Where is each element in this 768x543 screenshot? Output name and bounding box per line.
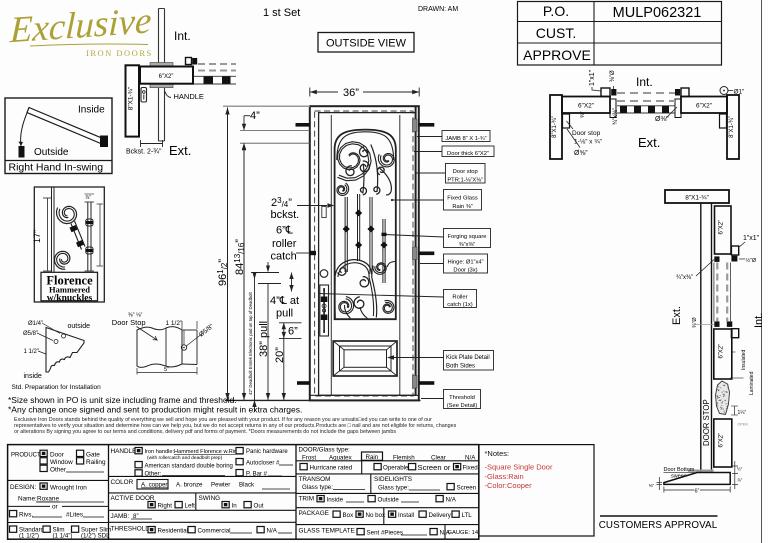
svg-text:Door stop: Door stop [572,130,601,137]
svg-text:bckst.: bckst. [271,209,300,221]
svg-text:Laminated: Laminated [749,371,755,395]
svg-text:Fixed: Fixed [463,465,479,472]
svg-text:Both Sides: Both Sides [446,364,475,370]
svg-text:6”X2”: 6”X2” [696,103,712,110]
svg-text:6”: 6” [695,489,700,495]
svg-text:A. bronze: A. bronze [176,482,203,489]
svg-text:Hinge: Ø1”x4”: Hinge: Ø1”x4” [447,259,483,265]
svg-text:CUST.: CUST. [536,25,576,41]
svg-text:1 1/2”: 1 1/2” [166,320,183,327]
svg-text:PACKAGE: PACKAGE [299,510,329,517]
svg-text:IRON DOORS: IRON DOORS [86,48,153,58]
svg-text:Panic hardware: Panic hardware [246,449,288,455]
svg-text:Aquatex: Aquatex [329,454,353,461]
svg-text:Glass type:: Glass type: [302,484,333,491]
svg-text:HANDLE: HANDLE [174,92,204,101]
svg-text:American standard double borin: American standard double boring [145,464,233,470]
svg-text:or alterations By signing you: or alterations By signing you agree to o… [14,429,396,435]
svg-text:TRANSOM: TRANSOM [299,476,331,483]
svg-text:Pewter: Pewter [211,482,230,489]
svg-text:6”X2”: 6”X2” [719,433,725,448]
svg-text:JAMB:: JAMB: [111,513,130,520]
svg-text:Name:: Name: [18,496,37,503]
svg-text:N/A: N/A [267,528,278,535]
svg-text:(1 1/2”): (1 1/2”) [19,533,39,540]
svg-text:Operable: Operable [383,465,409,472]
svg-text:GLASS TEMPLATE: GLASS TEMPLATE [299,528,355,535]
svg-text:1 st Set: 1 st Set [263,7,300,19]
svg-text:Screen or: Screen or [418,463,451,472]
svg-text:38” pull: 38” pull [258,321,270,357]
svg-text:-Color:Cooper: -Color:Cooper [485,481,533,490]
svg-text:-Square Single Door: -Square Single Door [485,463,553,472]
svg-text:Right: Right [158,503,173,510]
svg-text:Delivery: Delivery [429,512,452,519]
svg-text:No box: No box [366,512,387,519]
svg-text:Railing: Railing [86,459,106,466]
svg-text:N/A: N/A [465,454,476,461]
svg-text:Screen: Screen [457,485,477,492]
svg-text:-Glass:Rain: -Glass:Rain [485,472,524,481]
svg-text:GAUGE: 14: GAUGE: 14 [448,530,479,536]
svg-text:5”: 5” [164,367,169,373]
svg-text:Out: Out [254,503,264,510]
svg-text:inside: inside [24,373,42,380]
svg-text:¾”x⅜”: ¾”x⅜” [676,275,693,281]
svg-text:Outside: Outside [34,147,69,158]
svg-text:Door stop: Door stop [453,169,478,175]
svg-text:APPROVE: APPROVE [523,47,591,63]
svg-text:Gate: Gate [86,452,100,459]
svg-text:Hurricane rated: Hurricane rated [310,465,353,472]
svg-text:6”X2”: 6”X2” [719,220,725,235]
svg-text:roller: roller [272,238,297,250]
svg-text:DESIGN:: DESIGN: [10,484,37,491]
svg-text:*Notes:: *Notes: [485,449,510,458]
svg-text:PRODUCT:: PRODUCT: [11,453,42,459]
svg-text:Ext.: Ext. [638,135,660,150]
svg-text:¾”x⅜”: ¾”x⅜” [613,108,619,125]
svg-text:Roxane: Roxane [37,496,59,503]
svg-text:P.O.: P.O. [543,3,569,19]
svg-text:36”: 36” [343,87,359,99]
svg-text:Ø5/8”: Ø5/8” [198,323,215,339]
svg-text:1”x1”: 1”x1” [743,235,760,242]
svg-text:8”X1-¾”: 8”X1-¾” [552,116,558,138]
svg-text:Door Bottom: Door Bottom [664,467,695,473]
svg-text:20”: 20” [274,347,286,363]
svg-text:Threshold: Threshold [449,395,475,401]
svg-text:DRAWN: AM: DRAWN: AM [418,6,458,13]
svg-text:Ø⅝”: Ø⅝” [574,150,588,157]
svg-text:(with rollercatch and deadbolt: (with rollercatch and deadbolt prep) [147,455,223,461]
svg-text:1”x1”: 1”x1” [589,69,596,86]
svg-text:Other:: Other: [145,472,162,478]
svg-text:8”X1-¾”: 8”X1-¾” [128,87,135,110]
svg-text:⅞”: ⅞” [85,195,91,201]
svg-text:Residential: Residential [158,528,189,535]
svg-text:#Lites: #Lites [66,512,83,519]
svg-text:Roller: Roller [452,294,467,300]
svg-text:Outside: Outside [378,497,400,504]
svg-text:6”X2”: 6”X2” [159,74,174,80]
svg-text:Door: Door [50,452,65,459]
svg-text:JAMB 8” X 1-¾”: JAMB 8” X 1-¾” [445,136,486,142]
svg-text:½”: ½” [737,466,743,472]
svg-text:*Size shown in PO is unit size: *Size shown in PO is unit size including… [8,395,237,405]
svg-text:w/knuckles: w/knuckles [47,294,93,304]
svg-text:Bckst. 2-¾”: Bckst. 2-¾” [126,149,162,156]
svg-text:N/A: N/A [446,497,457,504]
svg-text:Other: Other [50,467,67,474]
svg-text:(See Detail): (See Detail) [447,403,478,409]
svg-text:Commercial: Commercial [198,528,231,535]
svg-text:DOOR STOP: DOOR STOP [702,399,711,446]
svg-text:Door Stop: Door Stop [112,318,146,327]
svg-text:OUTSIDE VIEW: OUTSIDE VIEW [326,38,407,50]
svg-text:Ø1”: Ø1” [734,89,745,96]
svg-text:Install: Install [398,512,414,519]
svg-text:4”℄ at: 4”℄ at [270,295,299,307]
svg-text:COLOR: COLOR [111,479,134,486]
svg-text:*Any change once signed and se: *Any change once signed and sent to prod… [8,405,302,415]
svg-text:1¼”: 1¼” [738,410,747,416]
svg-text:Autocloser #: Autocloser # [246,461,280,467]
svg-text:Ø1/4”: Ø1/4” [28,321,43,327]
svg-text:Left: Left [185,503,196,510]
svg-text:Kick Plate Detail: Kick Plate Detail [446,355,490,361]
svg-text:Window: Window [50,459,73,466]
svg-text:⅜”Ø: ⅜”Ø [610,70,616,82]
svg-text:catch: catch [271,251,297,263]
svg-text:In: In [232,503,238,510]
svg-text:Box: Box [343,512,355,519]
svg-text:⅜”x⅜”: ⅜”x⅜” [459,242,475,248]
svg-text:17”: 17” [32,230,42,243]
svg-text:LTL: LTL [462,512,473,519]
svg-text:PTR:1-⅛”X⅜”: PTR:1-⅛”X⅜” [447,177,483,183]
svg-text:Std. Preparation for Installat: Std. Preparation for Installation [12,384,102,391]
svg-text:pull: pull [276,308,293,320]
svg-text:Inside: Inside [78,105,105,116]
svg-text:6”: 6” [288,326,298,338]
svg-text:THRESHOLD: THRESHOLD [111,526,151,533]
svg-text:6”X2”: 6”X2” [719,344,725,359]
svg-text:6”X2”: 6”X2” [578,103,594,110]
svg-text:Ext.: Ext. [169,143,191,158]
svg-text:catch (1x): catch (1x) [447,302,473,308]
svg-text:Frost: Frost [302,454,316,461]
svg-text:Rain ⅜”: Rain ⅜” [452,204,472,210]
svg-text:Door (3x): Door (3x) [453,267,477,273]
svg-text:Door thick 6”X2”: Door thick 6”X2” [447,151,489,157]
svg-text:42” Deadbolt Emtek Electronic: 42” Deadbolt Emtek Electronic pad on top… [248,291,253,395]
svg-text:6”℄: 6”℄ [276,225,293,237]
svg-text:Int.: Int. [636,75,653,89]
svg-text:Wrought Iron: Wrought Iron [50,485,87,492]
svg-text:(1 1/4”): (1 1/4”) [53,533,73,540]
svg-text:4”: 4” [250,110,260,122]
svg-text:Right Hand In-swing: Right Hand In-swing [9,162,104,174]
svg-text:Rain: Rain [366,454,379,461]
svg-text:outside: outside [68,323,91,330]
svg-text:⅜”Ø: ⅜”Ø [692,317,698,328]
svg-text:OPEN: OPEN [738,423,749,427]
svg-text:MULP062321: MULP062321 [613,5,702,21]
svg-text:CUSTOMERS APPROVAL: CUSTOMERS APPROVAL [599,520,718,531]
svg-text:Sent #Pieces: Sent #Pieces [367,530,403,537]
svg-text:DOOR/Glass type:: DOOR/Glass type: [299,447,351,454]
svg-text:Int.: Int. [174,29,191,43]
svg-text:Iron handle:Hammerd Florence w: Iron handle:Hammerd Florence w.Rings [145,449,244,455]
svg-text:8”X1-¾”: 8”X1-¾” [685,195,708,202]
svg-text:Inside: Inside [327,497,344,504]
svg-text:(1/2”) SDL: (1/2”) SDL [81,533,110,540]
svg-text:8”X1-¾”: 8”X1-¾” [729,116,735,138]
svg-text:P. Bar #: P. Bar # [246,472,268,478]
svg-text:1 1/2”: 1 1/2” [24,349,39,355]
svg-text:½”Ø: ½”Ø [746,257,757,264]
svg-text:23/4”: 23/4” [271,196,292,209]
svg-text:Black: Black [239,482,255,489]
svg-text:HANDLE:: HANDLE: [111,448,139,455]
svg-text:⅜”: ⅜” [649,483,655,488]
svg-text:Ext.: Ext. [671,306,683,325]
svg-text:⅜”: ⅜” [580,111,586,118]
svg-text:Rivs.: Rivs. [19,512,33,519]
svg-text:Int.: Int. [753,313,765,328]
svg-text:Clear: Clear [431,454,446,461]
svg-text:Fixed Glass: Fixed Glass [447,195,478,201]
svg-text:Flemish: Flemish [393,454,415,461]
svg-text:TRIM: TRIM [299,496,315,503]
svg-text:A. copper: A. copper [141,482,167,489]
svg-text:Glass type:: Glass type: [378,485,409,492]
svg-text:Insulated: Insulated [741,349,747,370]
svg-text:⅞”: ⅞” [737,478,743,483]
svg-text:SWING: SWING [199,495,221,502]
svg-text:Ø5/8”: Ø5/8” [23,331,38,337]
svg-text:or: or [52,504,59,511]
svg-text:Forging square: Forging square [448,234,487,240]
svg-text:SIDELIGHTS: SIDELIGHTS [374,476,412,483]
